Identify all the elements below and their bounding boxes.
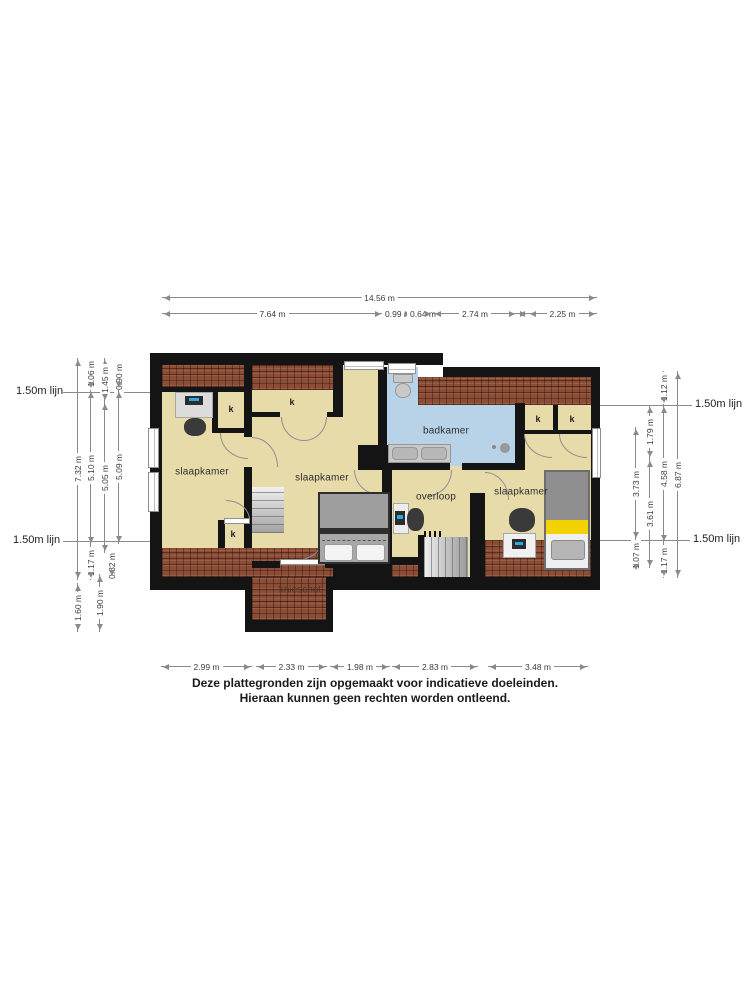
ref-line-right-upper bbox=[600, 405, 692, 406]
bed-right bbox=[544, 470, 590, 570]
disclaimer-line-1: Deze plattegronden zijn opgemaakt voor i… bbox=[0, 676, 750, 690]
chair-landing bbox=[407, 508, 424, 531]
dim-bottom-233: 2.33 m bbox=[256, 666, 327, 667]
dim-left-106: 1.06 m bbox=[90, 358, 91, 390]
stairs-winder-middle-bedroom bbox=[252, 487, 284, 533]
monitor-left-bedroom bbox=[185, 396, 203, 405]
label-closet-bottom-left: k bbox=[230, 529, 235, 539]
wall-bathroom-west bbox=[378, 367, 387, 445]
label-landing: overloop bbox=[416, 492, 456, 503]
dim-left-505: 5.05 m bbox=[104, 402, 105, 553]
dim-top-total: 14.56 m bbox=[162, 297, 597, 298]
chair-left-bedroom bbox=[184, 418, 206, 436]
bed-middle-pillow-right bbox=[356, 544, 385, 561]
label-150-line-left-lower: 1.50m lijn bbox=[13, 534, 60, 546]
window-right bbox=[592, 428, 601, 478]
kneewall-bump bbox=[252, 577, 326, 620]
roof-strip-top-left bbox=[162, 365, 244, 387]
label-bedroom-left: slaapkamer bbox=[175, 467, 229, 478]
bed-middle-duvet bbox=[320, 494, 388, 534]
disclaimer-line-2: Hieraan kunnen geen rechten worden ontle… bbox=[0, 691, 750, 705]
wall-bump-bottom bbox=[245, 620, 333, 632]
door-leaf-bottom-left bbox=[224, 518, 250, 524]
label-bedroom-right: slaapkamer bbox=[494, 487, 548, 498]
dim-left-732: 7.32 m bbox=[77, 358, 78, 580]
dim-top-064: 0.64 m bbox=[413, 313, 433, 314]
label-kneewall: knieschot bbox=[279, 585, 321, 596]
bed-middle-dash bbox=[322, 540, 386, 541]
dim-left-190: 1.90 m bbox=[99, 574, 100, 632]
label-150-line-right-lower: 1.50m lijn bbox=[693, 533, 740, 545]
window-left-lower bbox=[148, 472, 159, 512]
laptop-landing bbox=[395, 511, 405, 525]
wall-top-right-band bbox=[443, 367, 600, 377]
wall-closet-middle-south-a bbox=[252, 412, 280, 417]
roof-strip-top-middle bbox=[252, 365, 333, 390]
dim-top-274: 2.74 m bbox=[433, 313, 517, 314]
dim-left-090: 0.90 m bbox=[118, 363, 119, 390]
toilet-bowl bbox=[395, 383, 411, 398]
dim-bottom-283: 2.83 m bbox=[392, 666, 478, 667]
dim-left-510: 5.10 m bbox=[90, 390, 91, 545]
chair-right-bedroom bbox=[509, 508, 535, 532]
wall-bathroom-south-a bbox=[387, 463, 450, 470]
wall-bottom-right bbox=[333, 577, 600, 590]
washbasin-right bbox=[421, 447, 447, 460]
dim-right-179: 1.79 m bbox=[649, 405, 650, 459]
label-closet-middle: k bbox=[289, 397, 294, 407]
label-150-line-right-upper: 1.50m lijn bbox=[695, 398, 742, 410]
label-closet-right-b: k bbox=[569, 414, 574, 424]
laptop-right-bedroom bbox=[512, 539, 526, 549]
dim-left-117: 1.17 m bbox=[90, 545, 91, 580]
wall-bottom-mass bbox=[333, 562, 392, 577]
roof-strip-top-right bbox=[418, 377, 591, 405]
dim-right-107: 1.07 m bbox=[635, 540, 636, 572]
dim-right-117: 1.17 m bbox=[663, 543, 664, 578]
wall-bottom-left bbox=[150, 577, 245, 590]
dim-left-145: 1.45 m bbox=[104, 358, 105, 402]
wall-divider-left-middle-upper bbox=[244, 353, 252, 437]
shower-head bbox=[500, 443, 510, 453]
dim-left-509: 5.09 m bbox=[118, 390, 119, 544]
stairs-balustrade bbox=[424, 531, 444, 537]
floor-dormer-alcove bbox=[343, 367, 378, 448]
toilet-tank bbox=[393, 374, 413, 383]
dim-top-764: 7.64 m bbox=[162, 313, 383, 314]
wall-kneewall-left bbox=[252, 561, 280, 568]
wall-bedroom-right-west bbox=[470, 493, 485, 577]
washbasin-left bbox=[392, 447, 418, 460]
wall-right bbox=[591, 367, 600, 590]
dim-right-373: 3.73 m bbox=[635, 427, 636, 540]
floor-doorway-landing-bedroom bbox=[470, 470, 485, 493]
dim-right-458: 4.58 m bbox=[663, 405, 664, 543]
dim-left-160: 1.60 m bbox=[77, 583, 78, 632]
label-bathroom: badkamer bbox=[423, 426, 469, 437]
shower-dot bbox=[492, 445, 496, 449]
kneewall-strip-landing bbox=[392, 565, 418, 577]
window-dormer-bathroom bbox=[388, 363, 416, 374]
bed-right-duvet bbox=[546, 472, 588, 520]
label-bedroom-middle: slaapkamer bbox=[295, 473, 349, 484]
stairs-landing bbox=[424, 537, 468, 577]
wall-closet-middle-east bbox=[333, 365, 343, 415]
dim-top-225: 2.25 m bbox=[528, 313, 597, 314]
label-closet-left: k bbox=[228, 404, 233, 414]
window-left-upper bbox=[148, 428, 159, 468]
dim-left-082: 0.82 m bbox=[111, 553, 112, 578]
bed-right-accent bbox=[546, 520, 588, 534]
dim-right-361: 3.61 m bbox=[649, 459, 650, 568]
wall-door-stub-bottom-left bbox=[218, 520, 225, 548]
bed-middle-pillow-left bbox=[324, 544, 353, 561]
label-150-line-left-upper: 1.50m lijn bbox=[16, 385, 63, 397]
bed-right-pillow bbox=[551, 540, 585, 560]
dim-right-687: 6.87 m bbox=[677, 371, 678, 578]
label-closet-right-a: k bbox=[535, 414, 540, 424]
window-dormer-middle bbox=[344, 361, 384, 370]
dim-bottom-348: 3.48 m bbox=[488, 666, 588, 667]
dim-right-112: 1.12 m bbox=[663, 371, 664, 405]
dim-bottom-299: 2.99 m bbox=[161, 666, 252, 667]
wall-under-landing bbox=[392, 557, 418, 565]
bed-middle bbox=[318, 492, 390, 564]
floorplan-sheet: slaapkamer slaapkamer slaapkamer badkame… bbox=[0, 0, 750, 1000]
dim-bottom-198: 1.98 m bbox=[330, 666, 390, 667]
